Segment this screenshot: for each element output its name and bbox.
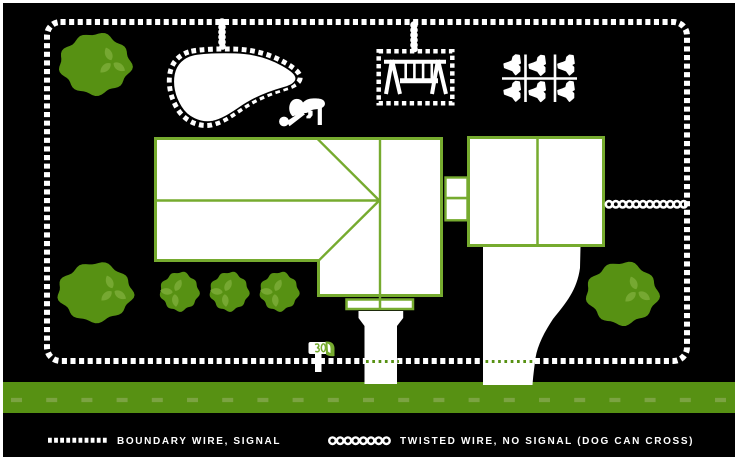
- svg-text:TWISTED WIRE, NO SIGNAL (DOG C: TWISTED WIRE, NO SIGNAL (DOG CAN CROSS): [400, 436, 694, 447]
- svg-text:BOUNDARY WIRE, SIGNAL: BOUNDARY WIRE, SIGNAL: [117, 436, 281, 447]
